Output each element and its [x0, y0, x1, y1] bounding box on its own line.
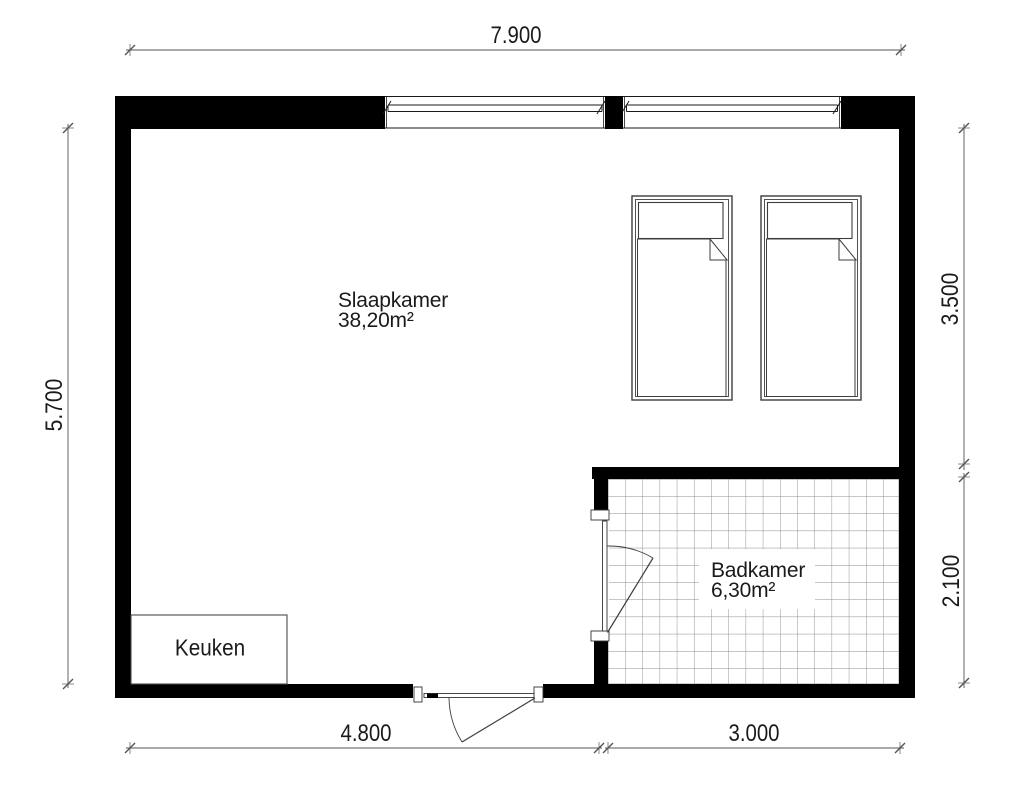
entrance-door-jamb-left [414, 687, 422, 702]
floorplan-canvas: Slaapkamer 38,20m² Badkamer 6,30m² Keuke… [0, 0, 1024, 809]
dim-left-label: 5.700 [43, 379, 67, 432]
wall-left [115, 96, 131, 698]
entrance-door-frame [424, 694, 534, 698]
window-1 [383, 96, 605, 130]
bed-2-blanket [767, 239, 856, 397]
bed-2-pillow [768, 203, 853, 239]
dim-bottom-left-label: 4.800 [340, 722, 391, 746]
bedroom-label: Slaapkamer 38,20m² [338, 291, 448, 331]
bathroom-area: 6,30m² [711, 581, 805, 601]
dim-bottom-right-label: 3.000 [728, 722, 779, 746]
bathroom-door-frame [603, 521, 608, 631]
bathroom-name: Badkamer [711, 561, 805, 581]
entrance-door-leaf [462, 698, 535, 742]
kitchen-label: Keuken [175, 635, 245, 662]
bathroom-door-jamb-top [591, 510, 609, 520]
wall-right [899, 96, 915, 698]
bed-1-blanket [638, 239, 727, 397]
dim-top-label: 7.900 [490, 24, 541, 48]
entrance-door-swing-arc [449, 698, 462, 742]
bedroom-name: Slaapkamer [338, 291, 448, 311]
window-pier [605, 96, 623, 129]
bed-1-pillow [639, 203, 724, 239]
bathroom-door-jamb-bottom [591, 631, 609, 641]
bedroom-area: 38,20m² [338, 311, 448, 331]
entrance-door-jamb-right [534, 687, 543, 702]
wall-bathroom-top [592, 467, 915, 479]
bathroom-label: Badkamer 6,30m² [711, 561, 805, 601]
bed-1 [632, 196, 732, 400]
dim-right-lower-label: 2.100 [940, 555, 964, 608]
floorplan-drawing [0, 0, 1024, 809]
window-2 [621, 96, 841, 130]
dim-right-upper-label: 3.500 [939, 273, 963, 326]
entrance-door-stop [427, 694, 438, 699]
bed-2 [761, 196, 861, 400]
entrance-door [413, 684, 543, 743]
